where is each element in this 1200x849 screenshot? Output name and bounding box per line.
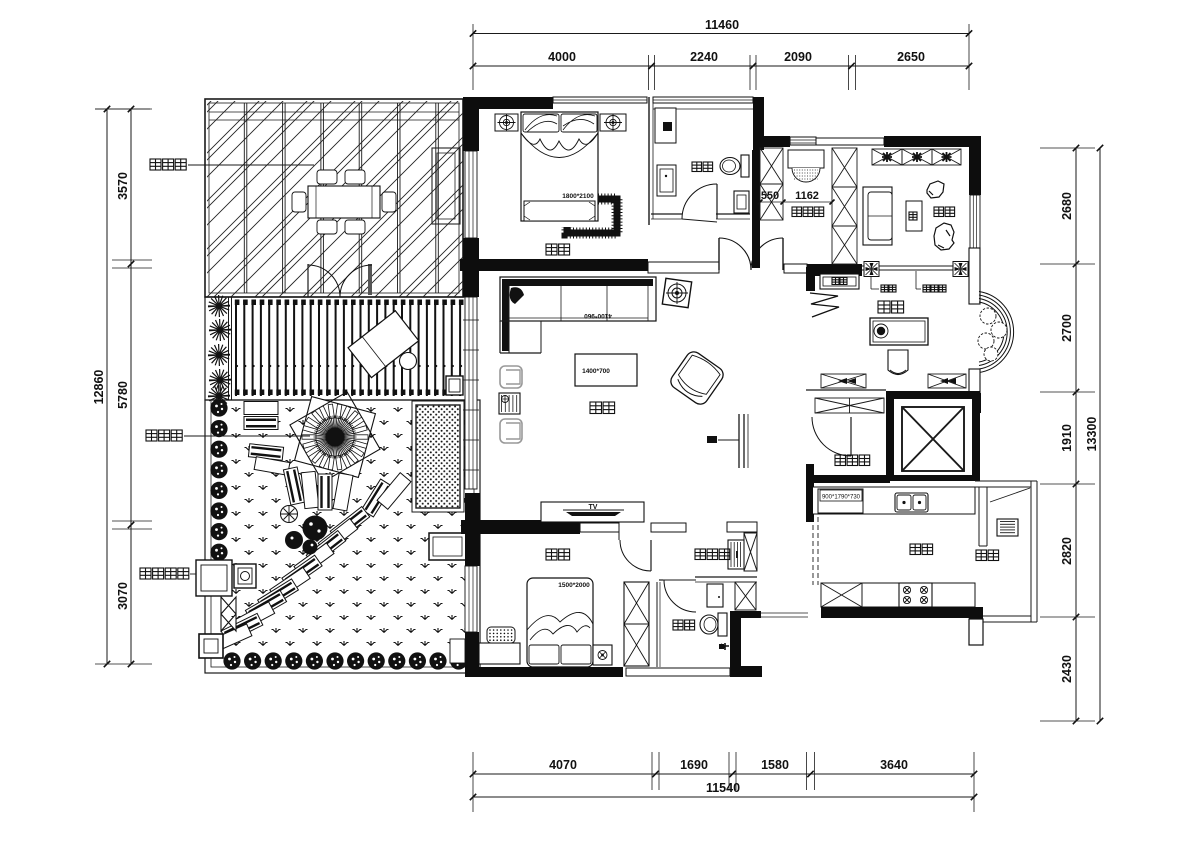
svg-text:1500*2000: 1500*2000: [558, 582, 590, 589]
svg-text:2090: 2090: [784, 50, 812, 64]
svg-text:1400*700: 1400*700: [582, 368, 610, 375]
svg-text:4070: 4070: [549, 758, 577, 772]
svg-text:1580: 1580: [761, 758, 789, 772]
svg-text:11460: 11460: [705, 18, 739, 32]
svg-text:2430: 2430: [1060, 655, 1074, 683]
svg-text:2240: 2240: [690, 50, 718, 64]
svg-text:1162: 1162: [795, 190, 819, 202]
svg-text:1800*2100: 1800*2100: [562, 193, 594, 200]
svg-text:4100*960: 4100*960: [584, 312, 612, 319]
svg-text:5780: 5780: [116, 381, 130, 409]
svg-text:550: 550: [761, 190, 779, 202]
svg-text:13300: 13300: [1085, 417, 1099, 452]
svg-text:900*1790*730: 900*1790*730: [822, 495, 861, 501]
svg-text:4000: 4000: [548, 50, 576, 64]
svg-text:1690: 1690: [680, 758, 708, 772]
svg-text:1910: 1910: [1060, 424, 1074, 452]
svg-text:TV: TV: [589, 504, 598, 511]
svg-text:2820: 2820: [1060, 537, 1074, 565]
svg-text:2650: 2650: [897, 50, 925, 64]
svg-text:3570: 3570: [116, 172, 130, 200]
svg-text:2680: 2680: [1060, 192, 1074, 220]
svg-text:12860: 12860: [92, 370, 106, 405]
svg-text:2700: 2700: [1060, 314, 1074, 342]
svg-text:3640: 3640: [880, 758, 908, 772]
svg-text:3070: 3070: [116, 582, 130, 610]
svg-text:11540: 11540: [706, 781, 740, 795]
